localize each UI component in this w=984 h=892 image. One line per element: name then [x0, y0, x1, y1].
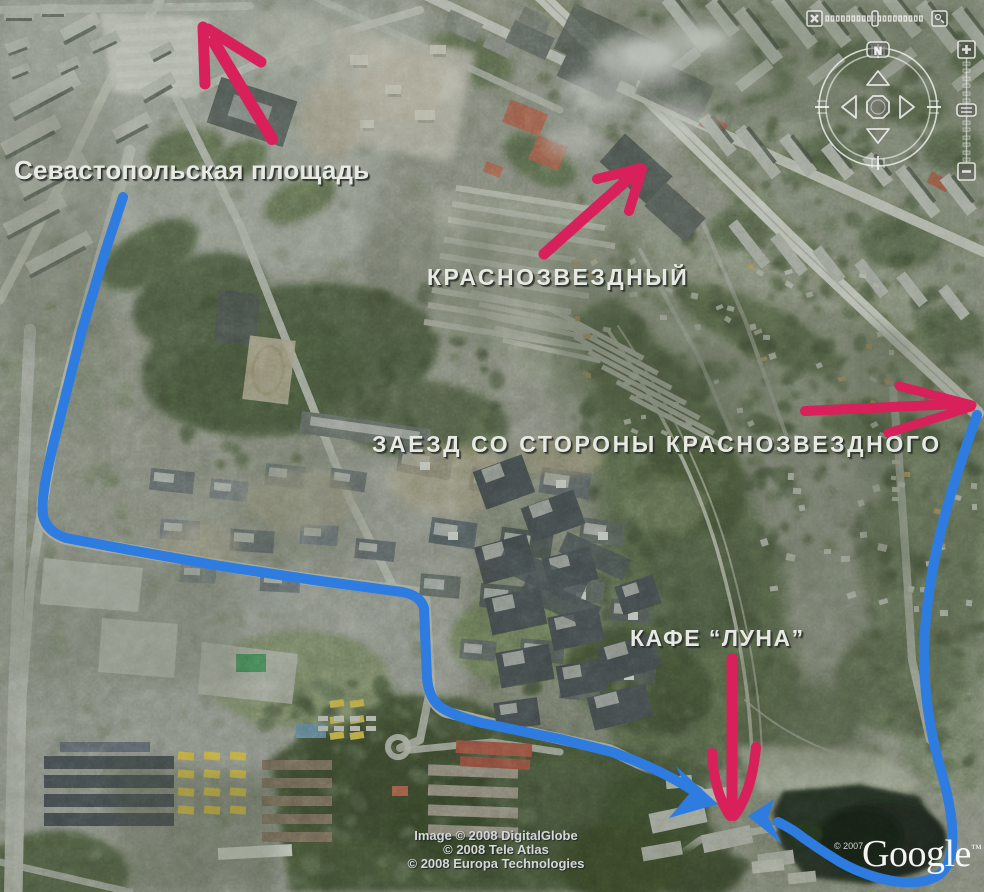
svg-text:N: N	[874, 46, 882, 58]
